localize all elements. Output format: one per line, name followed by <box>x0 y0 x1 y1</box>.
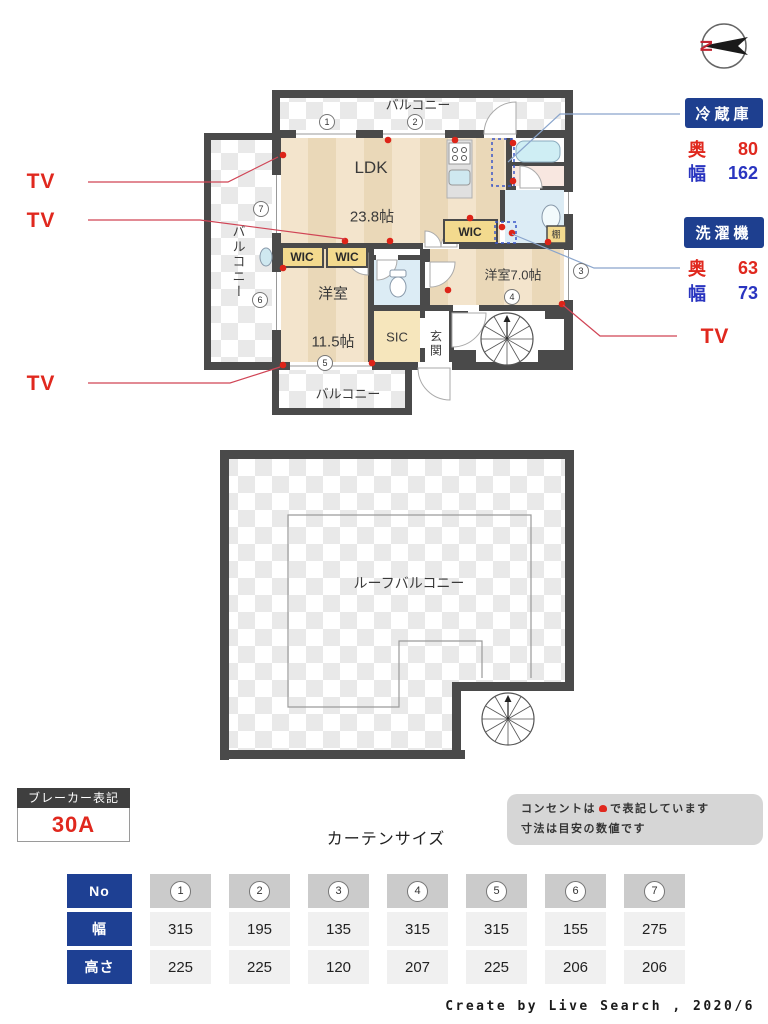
curtain-table-title: カーテンサイズ <box>327 825 446 849</box>
curtain-width-cell: 315 <box>150 912 211 946</box>
roof-balcony-label: ルーフバルコニー <box>354 573 465 593</box>
balcony-left-label: バルコニー <box>229 225 248 300</box>
bedroom1-label: 洋室 <box>318 283 348 304</box>
fridge-width-value: 162 <box>728 163 758 184</box>
curtain-width-cell: 315 <box>387 912 448 946</box>
curtain-height-cell: 120 <box>308 950 369 984</box>
kitchen-counter <box>447 140 472 198</box>
curtain-height-cell: 225 <box>150 950 211 984</box>
washer-title-badge: 洗濯機 <box>684 217 764 248</box>
washer-width-value: 73 <box>738 283 758 304</box>
plan-curtain-6: 6 <box>252 292 268 308</box>
compass-north-label: N <box>697 40 716 52</box>
curtain-width-cell: 135 <box>308 912 369 946</box>
ldk-label: LDK <box>354 158 387 178</box>
curtain-row-header-width: 幅 <box>67 912 132 946</box>
note-box: コンセントはで表記しています 寸法は目安の数値です <box>507 794 763 845</box>
shelf-label: 棚 <box>551 228 560 241</box>
breaker-value: 30A <box>52 812 95 838</box>
fridge-width-row: 幅 162 <box>688 163 758 183</box>
main-floor-plan <box>88 90 680 415</box>
plan-curtain-2: 2 <box>407 114 423 130</box>
washer-depth-label: 奥 <box>688 255 706 281</box>
bathtub <box>516 141 560 162</box>
toilet-tank <box>390 270 406 277</box>
balcony-bottom-label: バルコニー <box>316 384 381 403</box>
curtain-col-header: 3 <box>308 874 369 908</box>
curtain-col-header: 6 <box>545 874 606 908</box>
bedroom2-label: 洋室7.0帖 <box>484 265 541 284</box>
curtain-width-cell: 155 <box>545 912 606 946</box>
fridge-title-badge: 冷蔵庫 <box>685 98 763 128</box>
outlet-dot-icon <box>599 805 607 812</box>
curtain-size-table: No 1 2 3 4 5 6 7 幅 315 195 135 315 315 1… <box>67 874 685 984</box>
tv-label-1: TV <box>27 170 56 194</box>
curtain-height-cell: 207 <box>387 950 448 984</box>
tv-label-3: TV <box>27 372 56 396</box>
washer-depth-value: 63 <box>738 258 758 279</box>
breaker-value-box: 30A <box>17 808 130 842</box>
curtain-height-cell: 225 <box>229 950 290 984</box>
curtain-width-cell: 275 <box>624 912 685 946</box>
curtain-width-cell: 315 <box>466 912 527 946</box>
curtain-row-header-height: 高さ <box>67 950 132 984</box>
tv-label-4: TV <box>701 325 730 349</box>
wic-label-b: WIC <box>335 250 358 264</box>
bedroom1-size-label: 11.5帖 <box>311 331 354 352</box>
toilet <box>390 277 406 297</box>
floor-plan-page: N TV TV TV TV 冷蔵庫 奥 80 幅 162 洗濯機 奥 63 幅 … <box>0 0 768 1024</box>
washer-width-row: 幅 73 <box>688 283 758 303</box>
credit-text: Create by Live Search , 2020/6 <box>445 999 755 1014</box>
ldk-size-label: 23.8帖 <box>350 206 394 227</box>
washer-depth-row: 奥 63 <box>688 258 758 278</box>
washer-title: 洗濯機 <box>695 222 752 243</box>
curtain-height-cell: 206 <box>545 950 606 984</box>
curtain-height-cell: 225 <box>466 950 527 984</box>
washer-width-label: 幅 <box>688 280 706 306</box>
fridge-depth-label: 奥 <box>688 136 706 162</box>
plan-curtain-7: 7 <box>253 201 269 217</box>
wic-label-c: WIC <box>458 225 481 239</box>
fridge-depth-value: 80 <box>738 139 758 160</box>
curtain-col-header: 5 <box>466 874 527 908</box>
fridge-width-label: 幅 <box>688 160 706 186</box>
note-line-1: コンセントはで表記しています <box>521 800 763 820</box>
breaker-title: ブレーカー表記 <box>17 788 130 808</box>
tv-label-2: TV <box>27 209 56 233</box>
wic-label-a: WIC <box>290 250 313 264</box>
roof-balcony-plan <box>220 450 574 760</box>
balcony-faucet <box>260 248 272 266</box>
note-line-2: 寸法は目安の数値です <box>521 820 763 840</box>
fridge-title: 冷蔵庫 <box>695 103 752 124</box>
plan-curtain-3: 3 <box>573 263 589 279</box>
curtain-col-header: 2 <box>229 874 290 908</box>
compass-icon: N <box>697 24 748 68</box>
plan-curtain-1: 1 <box>319 114 335 130</box>
fridge-depth-row: 奥 80 <box>688 139 758 159</box>
breaker-box: ブレーカー表記 30A <box>17 788 130 842</box>
curtain-col-header: 7 <box>624 874 685 908</box>
curtain-col-header: 1 <box>150 874 211 908</box>
balcony-top-label: バルコニー <box>386 95 451 114</box>
sic-label: SIC <box>386 330 408 345</box>
curtain-col-header: 4 <box>387 874 448 908</box>
curtain-row-header-no: No <box>67 874 132 908</box>
curtain-height-cell: 206 <box>624 950 685 984</box>
floor-plan-canvas: N <box>0 0 768 1024</box>
entrance-label: 玄関 <box>428 330 445 358</box>
plan-curtain-4: 4 <box>504 289 520 305</box>
plan-curtain-5: 5 <box>317 355 333 371</box>
curtain-width-cell: 195 <box>229 912 290 946</box>
